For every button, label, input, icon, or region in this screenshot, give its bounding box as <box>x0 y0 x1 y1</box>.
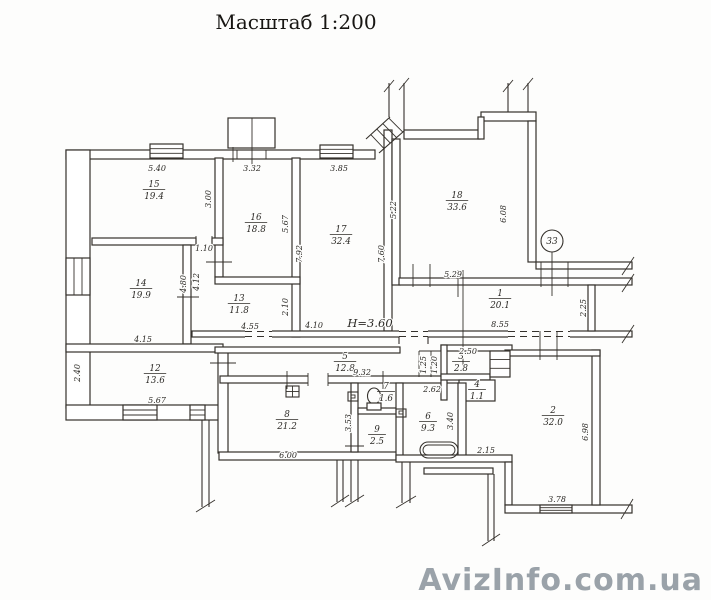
dimension-label: 3.78 <box>548 495 566 504</box>
dimension-label: 4.10 <box>304 321 323 330</box>
room-area-1: 20.1 <box>489 301 510 311</box>
window <box>490 351 510 377</box>
dimension-label: 5.67 <box>281 214 290 233</box>
room-area-3: 2.8 <box>453 364 468 374</box>
room-area-8: 21.2 <box>276 422 297 432</box>
room-number-16: 16 <box>250 213 262 223</box>
dimension-label: 4.80 <box>179 275 188 294</box>
dimension-label: 6.98 <box>581 423 590 441</box>
dimension-label: 3.53 <box>344 414 353 432</box>
room-number-13: 13 <box>233 294 245 304</box>
room-number-4: 4 <box>473 380 480 390</box>
room-number-18: 18 <box>451 191 463 201</box>
room-number-12: 12 <box>149 364 161 374</box>
dimension-label: 3.32 <box>243 164 261 173</box>
room-area-4: 1.1 <box>470 392 484 402</box>
bay-projection <box>228 118 275 170</box>
dimension-label: 2.10 <box>281 298 290 317</box>
room-number-17: 17 <box>335 225 347 235</box>
dimension-label: 4.15 <box>133 335 152 344</box>
room-area-18: 33.6 <box>447 203 467 213</box>
room-area-7: 1.6 <box>379 394 393 404</box>
room-area-12: 13.6 <box>145 376 165 386</box>
scale-title: Масштаб 1:200 <box>215 10 376 34</box>
room-number-8: 8 <box>284 410 290 420</box>
room-number-5: 5 <box>342 352 348 362</box>
dimension-label: 1.10 <box>195 244 213 253</box>
dimension-label: 2.50 <box>458 347 477 356</box>
room-area-15: 19.4 <box>144 192 164 202</box>
room-number-1: 1 <box>497 289 503 299</box>
room-area-13: 11.8 <box>229 306 249 316</box>
room-area-16: 18.8 <box>246 225 266 235</box>
room-area-2: 32.0 <box>543 418 563 428</box>
dimension-label: 3.40 <box>446 412 455 430</box>
room-number-6: 6 <box>425 412 431 422</box>
dimension-label: 1.25 <box>419 356 428 374</box>
dimension-label: 3.85 <box>330 164 348 173</box>
electrical-panel-icon <box>286 386 299 397</box>
room-area-9: 2.5 <box>369 437 384 447</box>
dimension-label: 5.22 <box>389 201 398 219</box>
room-number-7: 7 <box>383 382 389 392</box>
dimension-label: 6.00 <box>279 451 297 460</box>
room-number-2: 2 <box>549 406 556 416</box>
room-area-17: 32.4 <box>331 237 351 247</box>
window <box>150 144 183 158</box>
dimension-label: 9.32 <box>353 368 371 377</box>
window <box>123 405 157 420</box>
dimension-label: 6.08 <box>499 205 508 223</box>
height-annotation: Н=3.60 <box>346 316 392 330</box>
room-area-6: 9.3 <box>421 424 435 434</box>
dimension-label: 4.12 <box>192 273 201 292</box>
watermark: AvizInfo.com.ua <box>418 563 703 598</box>
window <box>190 405 205 420</box>
dimension-label: 4.55 <box>240 322 259 331</box>
room-number-9: 9 <box>374 425 380 435</box>
dimension-label: 8.55 <box>491 320 509 329</box>
dimension-label: 2.62 <box>422 385 441 394</box>
dimension-label: 5.67 <box>148 396 167 405</box>
floor-plan-drawing: Масштаб 1:200 <box>0 0 711 600</box>
dimension-label: 7.92 <box>295 245 304 263</box>
room-number-14: 14 <box>135 279 146 289</box>
dimension-label: 2.40 <box>73 364 82 383</box>
dimension-label: 3.00 <box>204 190 213 208</box>
window <box>66 258 90 295</box>
dimension-label: 5.29 <box>444 270 462 279</box>
room-area-14: 19.9 <box>131 291 151 301</box>
axis-marker-number: 33 <box>546 237 558 247</box>
dimension-label: 7.60 <box>377 245 386 263</box>
room-number-15: 15 <box>148 180 160 190</box>
window <box>320 145 353 158</box>
floor-plan-page: Масштаб 1:200 <box>0 0 711 600</box>
dimension-label: 5.40 <box>148 164 166 173</box>
dimension-label: 2.15 <box>476 446 495 455</box>
window <box>540 505 572 513</box>
dimension-label: 1.20 <box>430 356 439 374</box>
dimension-label: 2.25 <box>579 299 588 318</box>
